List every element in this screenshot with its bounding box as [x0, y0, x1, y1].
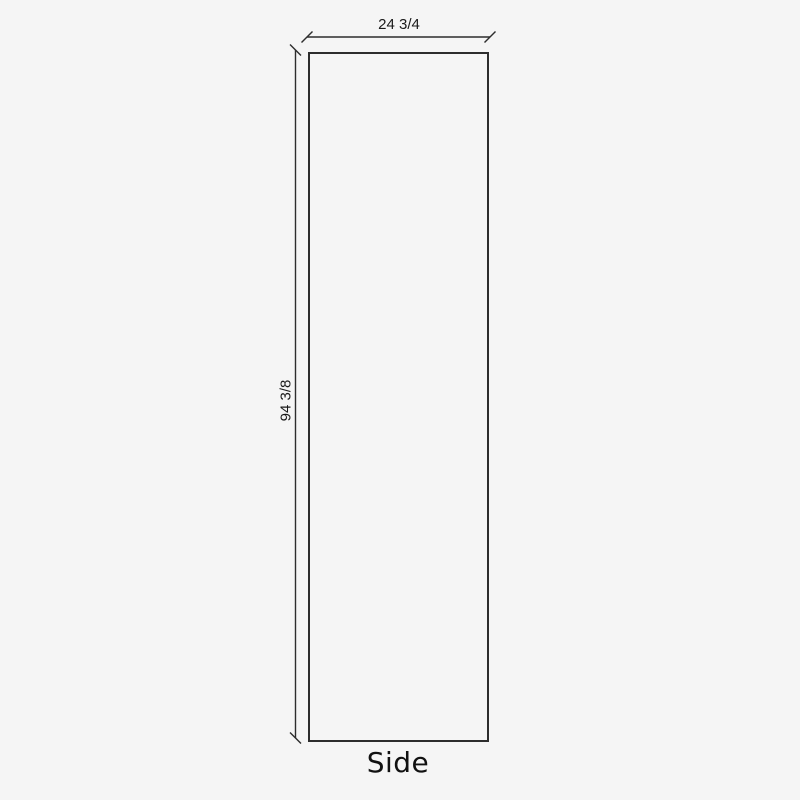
part-title: Side — [298, 746, 498, 780]
width-dimension-label: 24 3/4 — [308, 16, 490, 33]
height-dimension-label: 94 3/8 — [278, 371, 295, 431]
dimension-lines — [0, 0, 800, 800]
drawing-canvas: 24 3/4 94 3/8 Side — [0, 0, 800, 800]
